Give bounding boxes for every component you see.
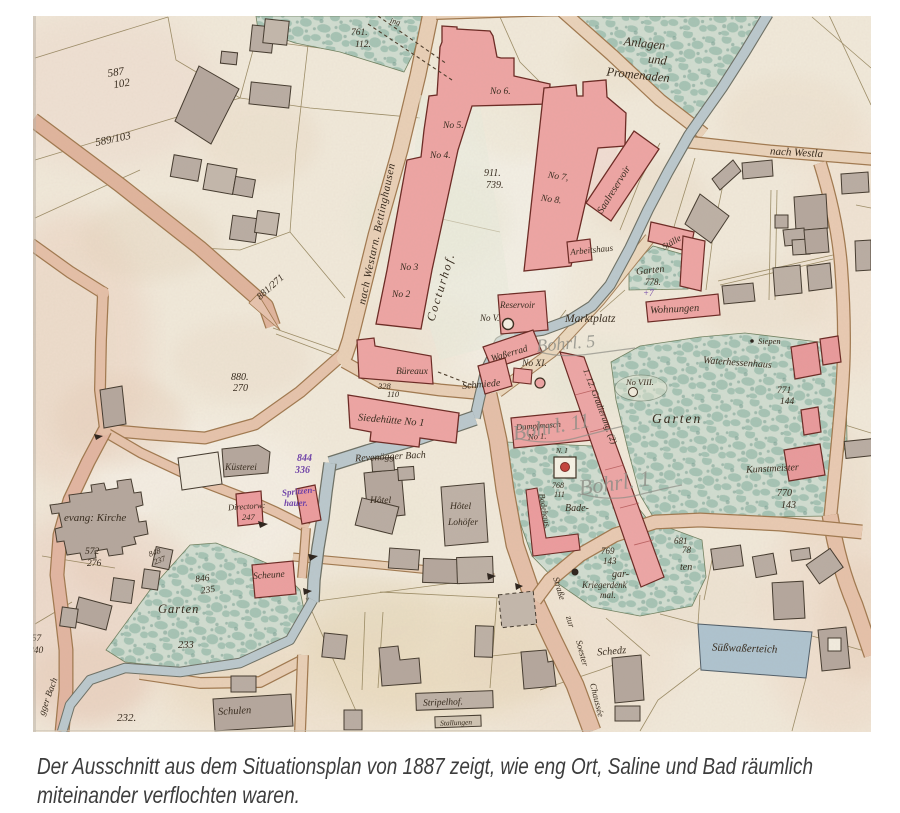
svg-text:Der Ausschnitt aus dem Situati: Der Ausschnitt aus dem Situationsplan vo… xyxy=(37,753,813,779)
svg-text:miteinander verflochten waren.: miteinander verflochten waren. xyxy=(37,782,300,808)
